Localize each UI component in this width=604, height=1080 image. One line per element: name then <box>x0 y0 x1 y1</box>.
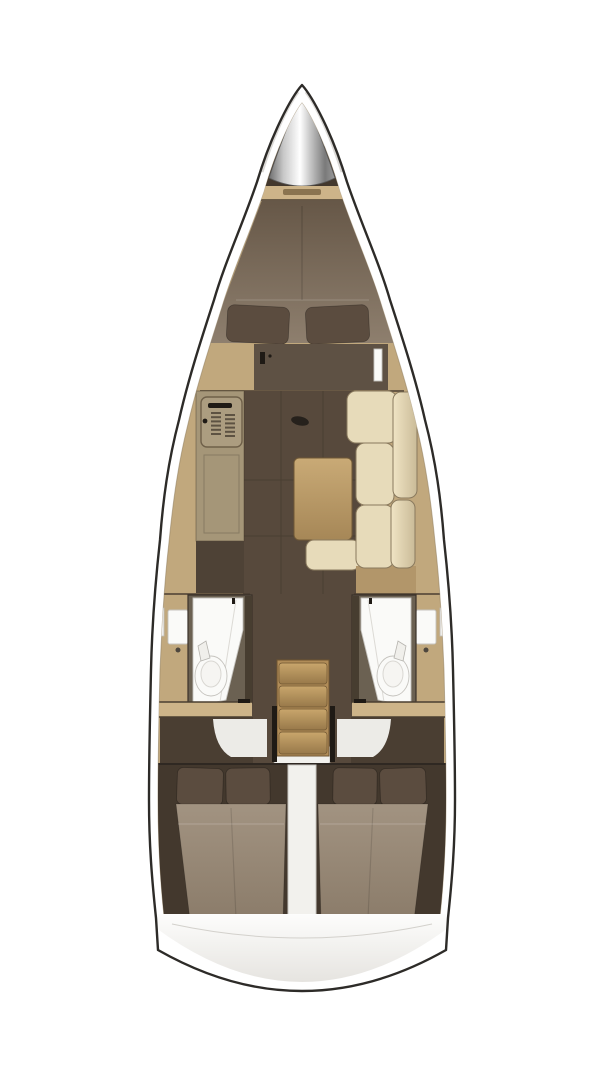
latch-icon <box>354 699 366 703</box>
v-berth-pillow-starboard <box>305 304 370 344</box>
aft-pillow-port-inner <box>226 768 271 806</box>
stern <box>156 914 448 982</box>
entry-shelf-port <box>155 702 252 717</box>
aft-cabin-port <box>176 767 286 920</box>
stair-rail-starboard <box>330 706 335 762</box>
salon <box>196 391 417 602</box>
toilet-starboard-bowl <box>383 661 403 687</box>
hinge-icon <box>232 598 235 604</box>
aft-berth-starboard <box>318 804 428 920</box>
engine-compartment-aft <box>288 765 316 921</box>
hinge-icon <box>369 598 372 604</box>
aft-cabins <box>152 764 452 922</box>
settee-seat-aft <box>356 505 394 568</box>
boat-floorplan <box>0 0 604 1080</box>
galley <box>196 391 244 593</box>
aft-pillow-port-outer <box>176 767 223 806</box>
aft-pillow-starboard-outer <box>379 767 426 806</box>
forward-cabin-door-jamb <box>374 349 382 381</box>
aft-berth-port <box>176 804 286 920</box>
stair-rail-port <box>272 706 277 762</box>
forward-cabin-door-handle <box>260 352 265 364</box>
settee-seat-forward <box>347 391 397 443</box>
floorplan-svg <box>0 0 604 1080</box>
sink-port <box>168 610 188 644</box>
door-latch-icon <box>268 354 271 357</box>
v-berth-pillow-port <box>226 304 290 344</box>
bench-cushion <box>306 540 360 570</box>
settee-seat-mid <box>356 443 394 505</box>
settee-back-aft <box>391 500 415 568</box>
faucet-starboard-icon <box>424 648 429 653</box>
faucet-port-icon <box>176 648 181 653</box>
head-starboard-door <box>352 596 359 702</box>
settee <box>347 391 417 602</box>
latch-icon <box>238 699 250 703</box>
sink-starboard <box>416 610 436 644</box>
stove-knob-icon <box>203 419 208 424</box>
entry-shelf-starboard <box>352 702 449 717</box>
salon-table <box>294 458 352 540</box>
toilet-port-bowl <box>201 661 221 687</box>
transom <box>156 914 448 982</box>
forward-cabin-foot-panel <box>254 344 388 390</box>
aft-cabin-starboard <box>318 767 428 920</box>
aft-pillow-starboard-inner <box>333 768 378 806</box>
galley-cabinet <box>196 541 244 593</box>
head-port-door <box>245 596 252 702</box>
stove-handle <box>208 403 232 408</box>
bow-hatch <box>283 189 321 195</box>
